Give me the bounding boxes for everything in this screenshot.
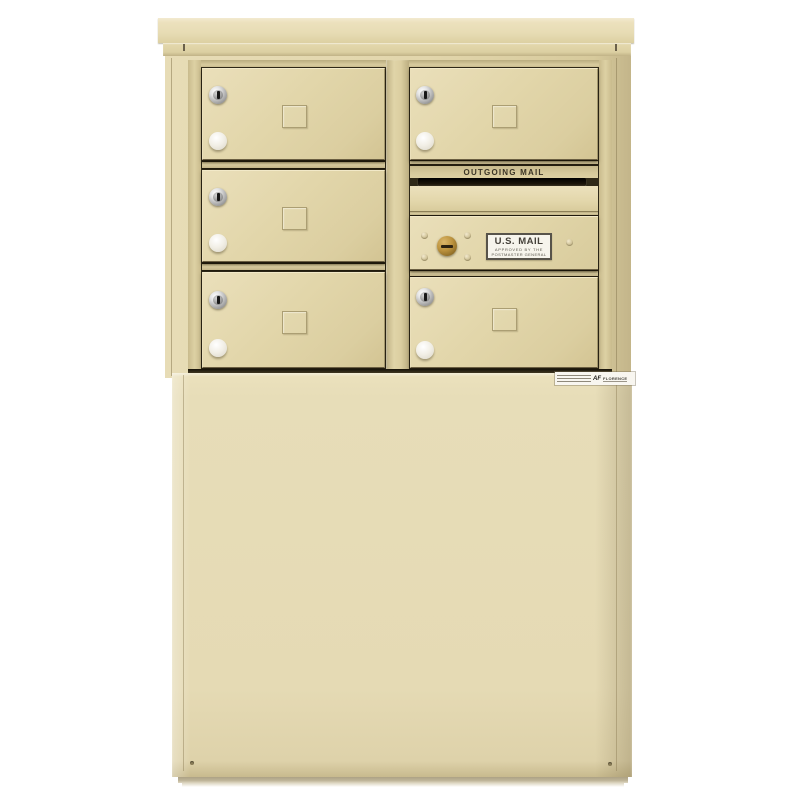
tenant-lock-icon [416, 288, 434, 306]
mailbox-cabinet: OUTGOING MAIL U.S. MAIL APPROVED BY THE … [165, 56, 631, 378]
bay-frame-left [188, 60, 201, 374]
usps-approval-decal: U.S. MAIL APPROVED BY THE POSTMASTER GEN… [486, 233, 552, 260]
pedestal-base [172, 373, 632, 777]
card-holder-window [282, 105, 307, 128]
outgoing-mail-slot [418, 178, 586, 186]
pedestal-screw-right [608, 762, 612, 766]
rivet-dimple [464, 254, 471, 261]
tenant-door-left-2 [202, 170, 385, 262]
usps-decal-title: U.S. MAIL [495, 237, 544, 247]
outgoing-mail-hopper-face [410, 186, 598, 212]
pedestal-seam-right [616, 375, 617, 771]
door-knob [209, 132, 227, 150]
door-knob [416, 132, 434, 150]
tenant-door-left-1 [202, 68, 385, 160]
outgoing-mail-label-strip: OUTGOING MAIL [410, 164, 598, 178]
manufacturer-label: AF FLORENCE [555, 372, 635, 385]
tenant-door-right-2 [410, 277, 598, 368]
manufacturer-name: FLORENCE [603, 376, 627, 382]
ground-shadow-fade [182, 783, 624, 787]
cap-notch-right [615, 44, 617, 51]
master-access-door: U.S. MAIL APPROVED BY THE POSTMASTER GEN… [410, 216, 598, 270]
tenant-lock-icon [209, 188, 227, 206]
tenant-door-left-3 [202, 272, 385, 368]
door-knob [416, 341, 434, 359]
shelf-right-2 [410, 212, 598, 215]
door-knob [209, 234, 227, 252]
shelf-right-3 [410, 271, 598, 276]
left-side-seam [171, 58, 172, 376]
pedestal-screw-left [190, 761, 194, 765]
card-holder-window [492, 308, 517, 331]
center-divider [386, 60, 409, 374]
manufacturer-logo: AF [593, 376, 601, 382]
manufacturer-label-fineprint [557, 375, 591, 382]
usps-decal-subtitle2: POSTMASTER GENERAL [492, 252, 547, 257]
tenant-lock-icon [209, 86, 227, 104]
shelf-left-1 [202, 162, 385, 168]
outgoing-mail-hopper: OUTGOING MAIL [410, 164, 598, 212]
tenant-lock-icon [416, 86, 434, 104]
pedestal-seam-left [183, 375, 184, 771]
rivet-dimple [464, 232, 471, 239]
tenant-lock-icon [209, 291, 227, 309]
cap-notch-left [183, 44, 185, 51]
rivet-dimple [421, 232, 428, 239]
rivet-dimple [421, 254, 428, 261]
master-brass-lock-icon [437, 236, 457, 256]
door-knob [209, 339, 227, 357]
rivet-dimple [566, 239, 573, 246]
bay-frame-right [599, 60, 612, 374]
shelf-left-2 [202, 264, 385, 270]
card-holder-window [492, 105, 517, 128]
card-holder-window [282, 311, 307, 334]
door-bay: OUTGOING MAIL U.S. MAIL APPROVED BY THE … [188, 60, 612, 374]
card-holder-window [282, 207, 307, 230]
right-side-seam [616, 58, 617, 376]
product-photo: OUTGOING MAIL U.S. MAIL APPROVED BY THE … [0, 0, 800, 800]
outgoing-mail-label: OUTGOING MAIL [464, 168, 545, 177]
mailbox-top-cap [158, 18, 634, 43]
tenant-door-right-1 [410, 68, 598, 160]
mailbox-cap-reveal [163, 43, 631, 56]
